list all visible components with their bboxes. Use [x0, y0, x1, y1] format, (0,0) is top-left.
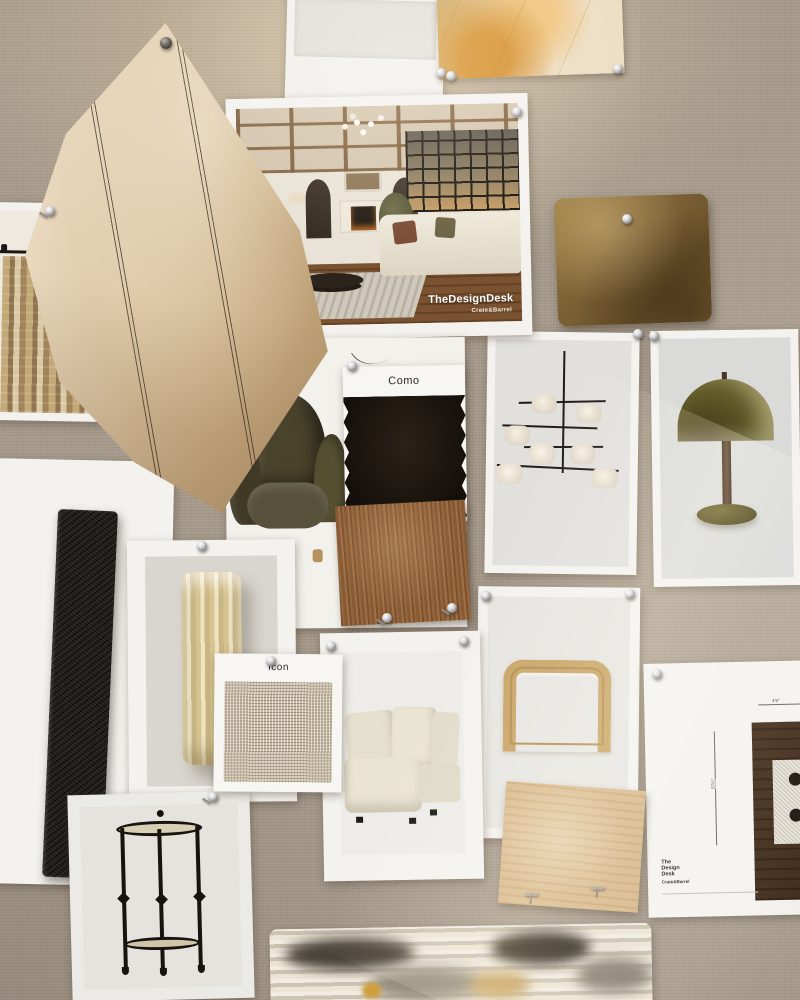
icon-swatch-header: Icon	[214, 653, 342, 680]
plan-dim-side-text: 57¼"	[710, 779, 715, 789]
push-pin-console-left	[481, 591, 491, 601]
stand-lower-shelf	[124, 936, 200, 951]
plan-brand-line-3: Desk	[661, 871, 689, 878]
como-swatch-label: Como	[388, 375, 420, 388]
chandelier-shade-2	[576, 403, 601, 423]
push-pin-floor-plan	[652, 669, 662, 679]
push-pin-rolled-card	[197, 541, 207, 551]
push-pin-icon-card	[266, 656, 276, 666]
room-subbrand-text: Crate&Barrel	[471, 308, 512, 315]
lamp-photo-card	[650, 329, 800, 587]
sofa-seat-right	[418, 764, 461, 803]
floor-plan-card: 4'6" 57¼" The Design Desk Crate&Barrel	[643, 660, 800, 918]
sofa-chaise	[344, 757, 422, 813]
push-pin-plant-stand	[208, 792, 218, 802]
sofa-pillow-olive	[435, 217, 456, 238]
firebox	[351, 206, 377, 230]
push-pin-como	[347, 361, 357, 371]
stand-knuckle-left	[117, 892, 130, 905]
plan-dim-horizontal: 4'6"	[758, 704, 800, 706]
rug-blob-tan-1	[469, 971, 531, 999]
rug-blob-black-1	[491, 930, 591, 965]
lamp-base	[696, 503, 757, 525]
plan-chair-circle-1	[788, 773, 800, 786]
plan-chair-circle-2	[789, 808, 800, 821]
chandelier-shade-7	[591, 467, 617, 488]
t-pin-maple-right	[591, 887, 604, 890]
brass-swatch	[554, 193, 712, 326]
icon-boucle-swatch	[223, 682, 332, 783]
como-swatch-header: Como	[343, 365, 466, 397]
sofa-photo-card	[320, 631, 484, 882]
chandelier-shade-5	[570, 444, 595, 464]
push-pin-veneer-right	[447, 603, 457, 613]
stand-foot-right	[198, 965, 205, 973]
push-pin-onyx-right	[613, 64, 623, 74]
sofa-foot-3	[430, 809, 437, 815]
chandelier-shade-4	[529, 443, 555, 464]
chandelier-shade-6	[496, 463, 522, 484]
t-pin-maple-left	[525, 893, 538, 896]
plan-rug	[773, 759, 800, 844]
push-pin-console-right	[625, 589, 635, 599]
sofa-back-cushion-3	[430, 711, 460, 767]
plan-dim-top-text: 4'6"	[771, 698, 781, 703]
maple-wood-sample	[498, 781, 646, 912]
push-pin-curtain-card	[45, 206, 55, 216]
push-pin-sofa-left	[326, 641, 336, 651]
wall-art	[344, 171, 381, 191]
rug-blob-gray-1	[369, 966, 484, 1000]
icon-swatch-card: Icon	[213, 653, 342, 792]
sofa-pillow-rust	[392, 220, 417, 244]
chandelier-photo-card	[484, 331, 639, 575]
floor-lamp	[288, 193, 305, 204]
push-pin-sofa-right	[459, 636, 469, 646]
stand-finial	[157, 810, 164, 817]
curtain-rod-finial	[1, 244, 7, 252]
lamp-photo	[658, 337, 793, 579]
rug-blob-dark-1	[285, 937, 415, 971]
polaroid-card	[285, 0, 446, 108]
stand-foot-center	[160, 968, 167, 976]
push-pin-chandelier-b	[649, 331, 659, 341]
push-pin-veneer-left	[382, 613, 392, 623]
rug-blob-gold-dot	[362, 983, 381, 998]
plan-fine-print-line	[662, 892, 758, 895]
push-pin-chandelier-a	[633, 329, 643, 339]
window-wall	[405, 129, 519, 212]
sofa-foot-1	[356, 816, 363, 822]
arched-door-left	[305, 179, 332, 238]
bentwood-console	[502, 659, 611, 753]
lamp-dome-shade	[677, 378, 773, 442]
plan-dim-vertical: 57¼"	[714, 731, 717, 845]
armchair-foot-3	[313, 550, 323, 563]
push-pin-polaroid	[436, 68, 446, 78]
push-pin-brass	[622, 214, 632, 224]
como-swatch-card: Como	[343, 365, 468, 523]
rug-blob-gray-2	[575, 956, 652, 993]
mood-board: TheDesignDesk Crate&Barrel Como	[0, 0, 800, 1000]
sofa-photo	[338, 651, 466, 855]
chandelier-shade-3	[505, 425, 530, 445]
push-pin-fabric	[160, 37, 172, 49]
room-brand-text: TheDesignDesk	[428, 292, 513, 306]
stand-knuckle-right	[193, 890, 206, 903]
plant-stand-photo	[80, 803, 243, 990]
plan-subbrand: Crate&Barrel	[662, 879, 690, 885]
plant-stand-photo-card	[67, 791, 254, 1000]
stand-knuckle-center	[155, 893, 168, 906]
wool-rug-swatch	[269, 923, 652, 1000]
armchair-seat	[247, 482, 328, 529]
chandelier-stem	[562, 351, 566, 473]
plan-brand-block: The Design Desk Crate&Barrel	[661, 858, 689, 884]
stand-foot-left	[122, 967, 129, 975]
onyx-slab	[437, 0, 625, 79]
push-pin-room-card	[512, 107, 522, 117]
push-pin-onyx-left	[446, 71, 456, 81]
sofa-foot-2	[409, 817, 416, 823]
lamp-stem	[722, 441, 732, 508]
polaroid-photo-area	[294, 0, 437, 60]
chandelier-shade-1	[531, 394, 556, 414]
chandelier-photo	[492, 339, 631, 567]
